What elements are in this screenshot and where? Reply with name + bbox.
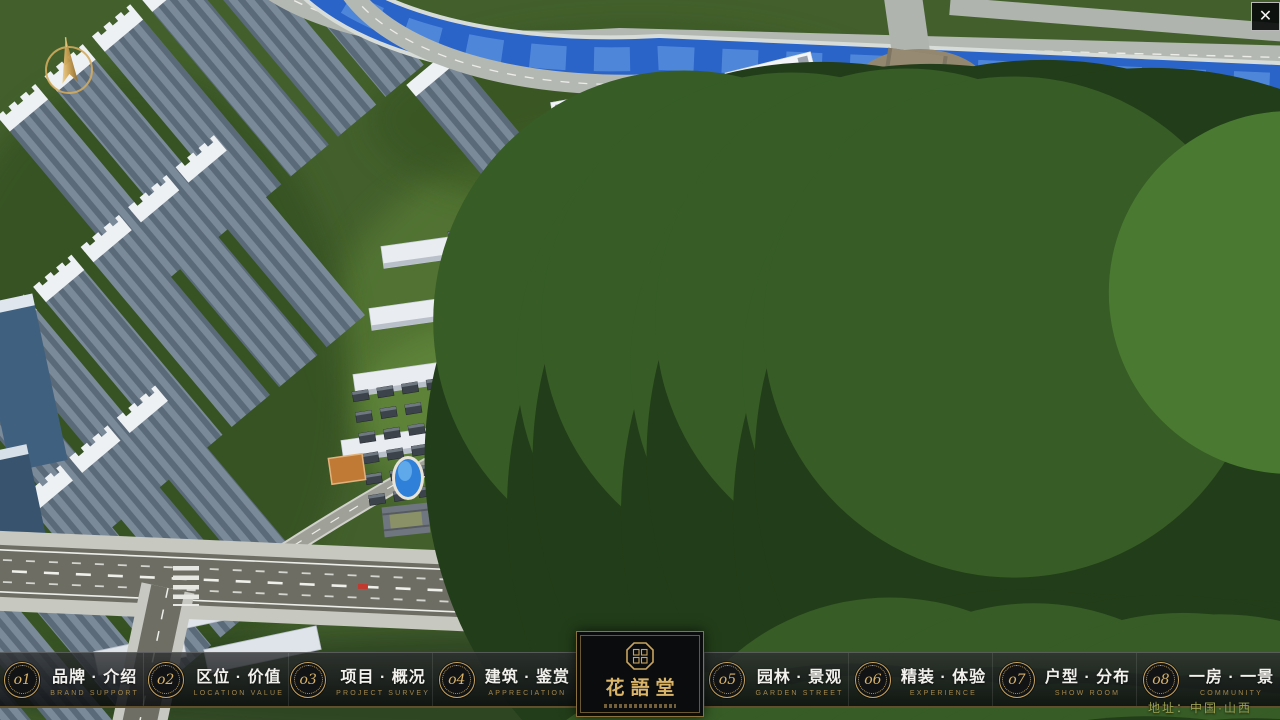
sales-presentation-screen: ✕ o1 品牌 · 介绍 BRAND SUPPORT o2 区位 · 价值 LO… — [0, 0, 1280, 720]
nav-subtitle: APPRECIATION — [488, 690, 566, 697]
nav-group-left: o1 品牌 · 介绍 BRAND SUPPORT o2 区位 · 价值 LOCA… — [0, 653, 576, 706]
logo-panel[interactable]: 花語堂 — [576, 631, 704, 717]
nav-item-interior[interactable]: o6 精装 · 体验 EXPERIENCE — [848, 653, 992, 706]
nav-item-brand[interactable]: o1 品牌 · 介绍 BRAND SUPPORT — [0, 653, 143, 706]
logo-subtext-line — [604, 704, 676, 708]
nav-subtitle: GARDEN STREET — [755, 690, 843, 697]
tree-cover — [425, 60, 1280, 720]
nav-item-garden[interactable]: o5 园林 · 景观 GARDEN STREET — [704, 653, 848, 706]
nav-badge-8: o8 — [1143, 662, 1179, 698]
nav-badge-5: o5 — [709, 662, 745, 698]
compass-icon — [38, 34, 100, 102]
nav-title: 精装 · 体验 — [901, 663, 986, 687]
nav-subtitle: PROJECT SURVEY — [336, 690, 430, 697]
nav-item-floorplan[interactable]: o7 户型 · 分布 SHOW ROOM — [992, 653, 1136, 706]
close-icon: ✕ — [1259, 9, 1272, 25]
nav-item-project[interactable]: o3 项目 · 概况 PROJECT SURVEY — [288, 653, 432, 706]
nav-badge-6: o6 — [855, 662, 891, 698]
nav-subtitle: LOCATION VALUE — [194, 690, 284, 697]
nav-item-location[interactable]: o2 区位 · 价值 LOCATION VALUE — [143, 653, 287, 706]
bottom-nav: o1 品牌 · 介绍 BRAND SUPPORT o2 区位 · 价值 LOCA… — [0, 652, 1280, 708]
nav-title: 品牌 · 介绍 — [52, 663, 137, 687]
nav-title: 园林 · 景观 — [757, 663, 842, 687]
nav-title: 一房 · 一景 — [1189, 663, 1274, 687]
seal-icon — [625, 641, 655, 671]
nav-item-architecture[interactable]: o4 建筑 · 鉴赏 APPRECIATION — [432, 653, 576, 706]
address-text: 地址：中国·山西 — [1148, 699, 1252, 716]
nav-title: 区位 · 价值 — [196, 663, 281, 687]
nav-title: 项目 · 概况 — [341, 663, 426, 687]
nav-title: 建筑 · 鉴赏 — [485, 663, 570, 687]
nav-subtitle: BRAND SUPPORT — [50, 690, 139, 697]
nav-title: 户型 · 分布 — [1045, 663, 1130, 687]
nav-badge-3: o3 — [290, 662, 326, 698]
nav-subtitle: COMMUNITY — [1200, 690, 1263, 697]
logo-title: 花語堂 — [599, 673, 680, 700]
nav-badge-7: o7 — [999, 662, 1035, 698]
nav-badge-2: o2 — [148, 662, 184, 698]
masterplan-render — [0, 0, 1280, 720]
nav-subtitle: EXPERIENCE — [910, 690, 977, 697]
nav-subtitle: SHOW ROOM — [1055, 690, 1120, 697]
nav-badge-1: o1 — [4, 662, 40, 698]
nav-badge-4: o4 — [439, 662, 475, 698]
close-button[interactable]: ✕ — [1251, 2, 1280, 31]
